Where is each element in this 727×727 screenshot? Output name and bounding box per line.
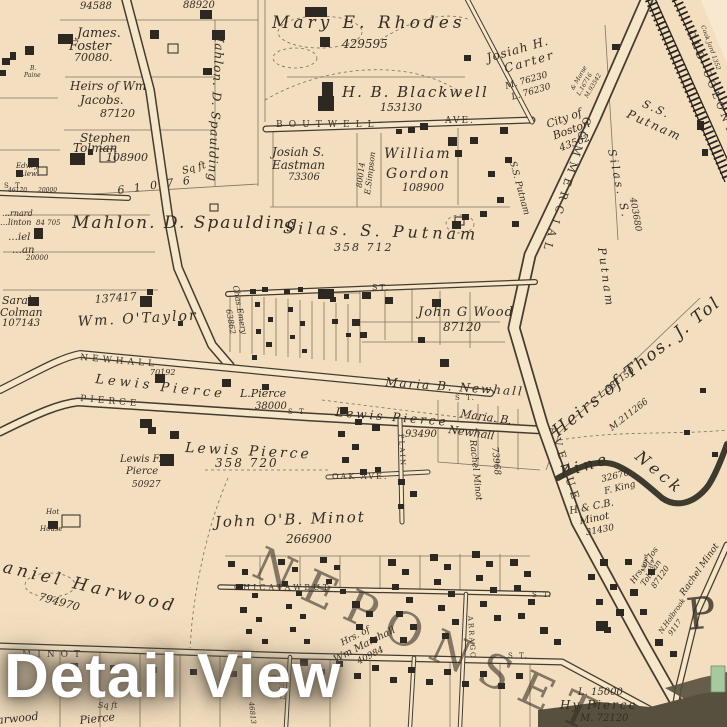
parcel-jb-minot: John O'B. Minot: [212, 508, 367, 531]
parcel-gordon: William: [384, 146, 452, 162]
street-st-5: S T.: [532, 591, 553, 599]
svg-text:38000: 38000: [255, 401, 287, 412]
svg-text:108900: 108900: [106, 151, 148, 164]
svg-text:Jacobs.: Jacobs.: [77, 93, 124, 107]
parcel-lewis-f-pierce: Lewis F.: [119, 454, 161, 465]
label-neck: Neck: [631, 446, 689, 499]
detail-view-caption: Detail View: [4, 641, 341, 712]
svg-text:House: House: [39, 525, 63, 533]
map-canvas: NEPONSET P 94588 88920 James. Foster 700…: [0, 0, 727, 727]
svg-text:Eastman: Eastman: [271, 158, 325, 172]
svg-text:Hy Pierce: Hy Pierce: [559, 698, 638, 712]
svg-text:Pierce: Pierce: [78, 710, 116, 727]
svg-text:46120: 46120: [7, 187, 27, 194]
svg-text:Llewi: Llewi: [19, 170, 39, 178]
label-hot-house: Hot: [45, 508, 59, 516]
svg-text:794970: 794970: [37, 590, 81, 613]
svg-text:Wm. O'Taylor: Wm. O'Taylor: [77, 308, 198, 330]
svg-text:70080.: 70080.: [74, 51, 113, 64]
parcel-jacobs: Heirs of Wm: [69, 79, 146, 93]
svg-text:Putnam: Putnam: [595, 246, 617, 309]
svg-text:358 712: 358 712: [334, 241, 394, 254]
parcel-spaulding-big: Mahlon. D. Spaulding: [71, 213, 299, 233]
svg-text:87120: 87120: [443, 320, 482, 334]
parcel-eastman: Josiah S.: [269, 145, 324, 159]
parcel-llewellyn: Edw. J.: [15, 162, 40, 170]
parcel-94588: 94588: [80, 1, 112, 12]
svg-text:87120: 87120: [100, 107, 135, 120]
parcel-harwood-pierce: Harwood: [0, 710, 39, 727]
svg-text:107143: 107143: [2, 318, 40, 329]
parcel-hy-pierce: L. 15000: [577, 687, 623, 698]
svg-text:Pierce: Pierce: [125, 466, 158, 477]
parcel-lewis-pierce-newhall: Lewis: [94, 372, 155, 393]
district-label-p: P: [684, 587, 719, 641]
street-oak-ave: OAK AVE.: [332, 472, 388, 481]
parcel-70192: 70192: [150, 368, 175, 377]
parcel-ss-putnam-road: S.S. Putnam: [507, 160, 531, 216]
green-parcel: [711, 666, 725, 692]
parcel-blackwell: H. B. Blackwell: [341, 83, 489, 101]
street-newhall: NEWHALL: [80, 353, 159, 370]
svg-text:M. 72120: M. 72120: [579, 713, 629, 724]
parcel-73968: 73968: [489, 446, 502, 476]
svg-text:20000: 20000: [37, 187, 57, 194]
svg-text:266900: 266900: [285, 532, 332, 546]
parcel-wood: John G Wood: [415, 305, 514, 320]
svg-text:…linton: …linton: [0, 218, 31, 227]
svg-text:50927: 50927: [132, 480, 161, 490]
street-st-2: ST.: [372, 283, 390, 292]
svg-text:73306: 73306: [288, 172, 320, 183]
parcel-ss-putnam: S.S. Putnam: [624, 93, 691, 144]
street-boutwell-ave: AVE.: [444, 116, 475, 126]
parcel-silas-big: Silas. S. Putnam: [283, 218, 480, 244]
svg-text:Paine: Paine: [23, 72, 41, 79]
svg-text:358 720: 358 720: [215, 456, 279, 470]
svg-text:429595: 429595: [341, 37, 388, 51]
parcel-carter: Josiah H. Carter M. 76230 L. 76230: [482, 33, 564, 107]
svg-text:63862: 63862: [224, 308, 237, 335]
parcel-88920: 88920: [183, 0, 215, 11]
street-boutwell: BOUTWELL: [276, 120, 380, 130]
svg-text:Gordon: Gordon: [386, 166, 451, 182]
parcel-rhodes: Mary E. Rhodes: [271, 13, 466, 33]
svg-text:84 705: 84 705: [36, 219, 61, 227]
svg-text:93490: 93490: [405, 429, 437, 440]
parcel-l-pierce: L.Pierce: [239, 387, 287, 400]
parcel-daniel-small: …iel: [8, 232, 30, 243]
atlas-map-detail-view: NEPONSET P 94588 88920 James. Foster 700…: [0, 0, 727, 727]
parcel-m211266: M.211266: [607, 397, 651, 434]
parcel-taylor: 137417: [94, 290, 137, 306]
street-st-3: S T.: [288, 408, 309, 416]
parcel-harwood: Daniel Harwood: [0, 553, 179, 617]
parcel-rachel-minot-v: Rachel Minot: [467, 438, 483, 501]
street-st-6: S T.: [508, 652, 529, 660]
svg-text:153130: 153130: [380, 101, 422, 114]
parcel-paine: B.: [29, 65, 36, 72]
parcel-silas-vertical: Silas. S.: [605, 148, 633, 221]
svg-text:Pierce: Pierce: [159, 380, 227, 402]
parcel-clinton: …rnard: [2, 209, 33, 218]
parcel-heirs-thos-tolman: Heirs of Thos. J. Tol: [548, 293, 725, 442]
parcel-spaulding-strip: Mahlon. D. Spaulding: [205, 29, 227, 182]
street-chicatawbut: CHICATAWBUT: [234, 583, 331, 592]
svg-text:108900: 108900: [402, 181, 444, 194]
svg-text:6 1 0 7 6: 6 1 0 7 6: [117, 174, 194, 197]
parcel-simpson: E.Simpson 80014: [354, 150, 377, 196]
street-st-4: S T.: [455, 394, 476, 402]
svg-text:20000: 20000: [25, 254, 49, 262]
